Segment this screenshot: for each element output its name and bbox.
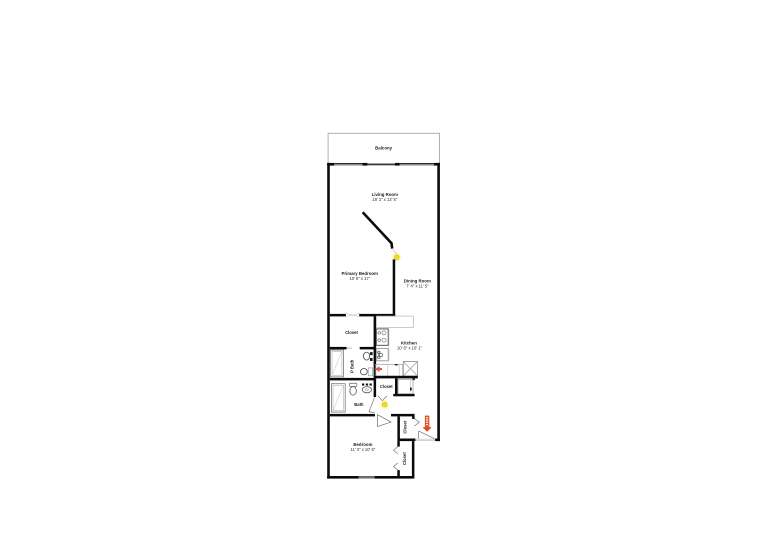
svg-text:Balcony: Balcony [375, 146, 392, 151]
svg-text:11' 3" x 10' 5": 11' 3" x 10' 5" [351, 447, 376, 452]
svg-text:Closet: Closet [380, 384, 393, 389]
svg-text:18' 2" x 13' 5": 18' 2" x 13' 5" [372, 197, 398, 202]
svg-text:Closet: Closet [402, 420, 407, 433]
svg-text:7' 4" x 11' 5": 7' 4" x 11' 5" [406, 283, 429, 288]
svg-text:10' 6" x 17': 10' 6" x 17' [349, 276, 369, 281]
svg-text:10' 8" x 10' 1": 10' 8" x 10' 1" [397, 345, 423, 350]
svg-text:P Bath: P Bath [349, 359, 354, 373]
svg-text:Bath: Bath [354, 402, 364, 407]
svg-text:Closet: Closet [345, 330, 358, 335]
svg-text:Closet: Closet [402, 452, 407, 465]
